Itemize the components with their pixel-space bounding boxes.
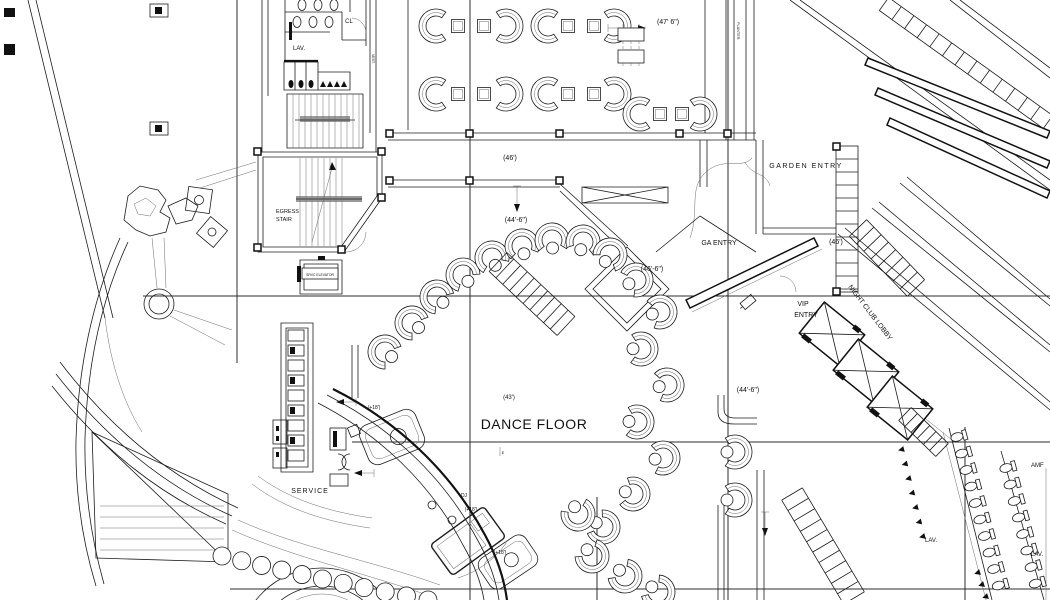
label-srvc-elevator: SRVC ELEVATOR <box>306 273 334 277</box>
landscape-left-path <box>152 238 232 345</box>
stair-edge <box>879 0 1050 128</box>
stall-toilet <box>298 0 306 11</box>
stair-tread <box>917 426 930 439</box>
stair-tread <box>831 571 852 583</box>
stair-tread <box>825 561 846 573</box>
bar-equipment <box>288 330 304 341</box>
scallop-seat <box>419 591 437 600</box>
booth-table <box>645 307 660 322</box>
stanchion-triangle <box>897 446 904 453</box>
planter-strip <box>726 0 754 140</box>
stair-tread <box>893 265 910 282</box>
column-markers <box>4 0 168 432</box>
booth-table <box>579 541 596 558</box>
booth-table <box>721 494 733 506</box>
label-dim-46-6: (46'-6") <box>641 266 664 273</box>
stall-toilet <box>314 0 322 11</box>
column <box>386 130 393 137</box>
urinal <box>309 80 314 88</box>
stair-tread <box>886 257 903 274</box>
booth-table <box>410 319 427 336</box>
restroom-block-path <box>289 22 292 40</box>
stair-edge <box>782 488 865 600</box>
bar-equipment-dark <box>290 347 295 354</box>
egress-stair-path <box>196 162 256 188</box>
column <box>556 130 563 137</box>
label-plus18-left: (+18') <box>368 405 381 411</box>
vip-entry-area-path-path <box>740 294 756 309</box>
stair-tread <box>905 16 914 29</box>
elevated-booths-path-path <box>475 531 542 592</box>
stanchion-triangle <box>981 593 989 600</box>
label-cl: CL <box>345 19 353 25</box>
stanchion-triangle <box>915 519 922 526</box>
stall-toilet <box>309 17 317 28</box>
booth-seat <box>419 77 446 111</box>
stair-tread <box>794 509 815 521</box>
stanchion-triangle <box>908 490 915 497</box>
night-club-lobby-walls <box>808 177 1050 440</box>
dj-booth-path <box>430 506 506 576</box>
urinal <box>299 80 304 88</box>
elevated-booths-path <box>347 403 427 471</box>
stair-tread <box>1018 97 1027 110</box>
booth-table <box>460 273 477 290</box>
urinal <box>289 80 294 88</box>
landscape-left-path <box>124 186 170 236</box>
bar-equipment-dark <box>290 407 295 414</box>
service-elevator-path <box>318 256 325 260</box>
stair-tread <box>892 7 901 20</box>
ramp-fan-top-right-path <box>790 0 1050 190</box>
column <box>386 177 393 184</box>
scallop-seat <box>376 583 394 600</box>
booth-table <box>567 499 583 515</box>
faucet-mark <box>327 81 333 87</box>
column <box>833 143 840 150</box>
stair-tread <box>942 43 951 56</box>
booth-seat <box>496 9 523 43</box>
booth-table <box>627 343 639 355</box>
stair-tread <box>806 529 827 541</box>
stair-tread <box>980 70 989 83</box>
landscape-left-path <box>149 294 169 314</box>
landscape-left-path <box>76 238 128 586</box>
stair-tread <box>1005 88 1014 101</box>
column-markers-path <box>155 7 162 14</box>
landscape-left-path <box>134 198 156 216</box>
stair-tread <box>879 0 888 10</box>
egress-stair <box>196 152 382 252</box>
stair-tread <box>900 272 917 289</box>
stanchion-triangle <box>904 475 911 482</box>
faucet-mark <box>341 81 347 87</box>
label-dim-44-6-mid: (44'-6") <box>737 387 760 394</box>
booth-table <box>623 415 636 428</box>
stair-tread <box>955 52 964 65</box>
rect-table <box>618 50 644 63</box>
label-ga-entry: GA ENTRY <box>701 240 737 247</box>
column <box>378 194 385 201</box>
booth-seat <box>606 557 649 600</box>
stanchion-triangle <box>901 461 908 468</box>
service-elevator-path <box>297 266 301 282</box>
service-bar-path <box>273 448 287 468</box>
stair-tread <box>923 432 936 445</box>
scallop-seat <box>253 556 271 574</box>
label-dj: DJ <box>461 493 468 499</box>
booth-table <box>621 276 637 292</box>
column <box>466 177 473 184</box>
faucet-mark <box>334 81 340 87</box>
landscape-left-path-path <box>206 226 217 237</box>
seating-area-walls-path <box>700 140 707 187</box>
label-dim-46-top: (46') <box>503 155 517 162</box>
service-bar-path <box>330 474 348 486</box>
booth-table <box>618 484 633 499</box>
booth-table <box>643 578 660 595</box>
restroom-block-path <box>284 62 350 90</box>
booth-table <box>721 446 733 458</box>
scallop-seat <box>355 579 373 597</box>
stair-tread <box>857 227 874 244</box>
grid-lines-path <box>354 470 362 476</box>
seating-area-walls-path <box>582 187 668 203</box>
booth-seat <box>531 9 558 43</box>
column <box>378 148 385 155</box>
label-vip-line1: VIP <box>797 301 809 308</box>
column-markers-path <box>28 0 113 318</box>
label-service: SERVICE <box>291 488 329 495</box>
stair-tread <box>930 438 943 451</box>
label-egress-line2: STAIR <box>276 217 292 223</box>
restroom-block-path <box>300 116 350 122</box>
landscape-left-path-path <box>194 195 204 205</box>
stair-tread <box>844 592 865 600</box>
service-bar-path <box>330 428 346 450</box>
scallop-seat <box>213 547 231 565</box>
bar-equipment-dark <box>290 377 295 384</box>
booth-table <box>611 562 628 579</box>
vip-entry-area-path-path <box>740 306 742 308</box>
stair-tread <box>837 581 858 593</box>
balcony-arcs-path <box>92 432 228 562</box>
elevated-booths-path <box>448 516 456 524</box>
label-vip-line2: ENTRY <box>794 312 818 319</box>
stair-tread <box>1043 116 1050 129</box>
stair-tread <box>782 488 803 500</box>
service-bar-path <box>276 436 279 441</box>
elevated-booths-path <box>475 531 542 592</box>
vip-entry-area-path <box>738 294 756 311</box>
stair-tread <box>917 25 926 38</box>
column <box>254 148 261 155</box>
stair-tread <box>930 34 939 47</box>
label-egress-line1: EGRESS <box>276 209 299 215</box>
stair-tread <box>936 444 949 457</box>
label-lav-right: LAV. <box>1031 552 1043 558</box>
faucet-mark <box>320 81 326 87</box>
booth-table <box>573 242 588 257</box>
booth-seat <box>419 9 446 43</box>
column-markers-path <box>4 8 15 17</box>
floor-plan-drawing: CL LAV. VEST. PLANTER (47' 6") GARDEN EN… <box>0 0 1050 600</box>
dance-floor-walls-path <box>352 345 358 398</box>
column <box>724 130 731 137</box>
booth-table <box>597 253 614 270</box>
bar-equipment <box>288 420 304 431</box>
elevated-booths-path <box>428 501 436 509</box>
stair-tread <box>1031 106 1040 119</box>
stair-tread <box>819 550 840 562</box>
service-bar-path <box>276 452 279 457</box>
column-markers-path <box>4 44 15 55</box>
booth-seat <box>531 77 558 111</box>
service-bar-path <box>252 476 372 528</box>
column <box>466 130 473 137</box>
scallop-seat <box>233 552 251 570</box>
label-dim-47-6: (47' 6") <box>657 19 679 26</box>
landscape-left-path <box>144 289 174 319</box>
service-bar-path <box>276 426 279 431</box>
stair-tread <box>993 79 1002 92</box>
garden-entry-room-path <box>756 140 836 234</box>
scallop-seat <box>314 570 332 588</box>
stair-tread <box>788 498 809 510</box>
scallop-seat <box>273 561 291 579</box>
landscape-left-path <box>197 217 228 248</box>
service-bar-path <box>338 454 350 470</box>
column <box>833 288 840 295</box>
label-dance-floor: DANCE FLOOR <box>481 416 588 432</box>
bar-equipment-dark <box>290 437 295 444</box>
label-dim-44-6-top: (44'-6") <box>505 217 528 224</box>
label-e-mark: E <box>502 450 505 455</box>
label-dim-46-right: (46') <box>829 239 843 246</box>
restroom-block-path <box>352 18 366 33</box>
column <box>676 130 683 137</box>
booth-table <box>383 348 400 365</box>
stall-toilet <box>293 17 301 28</box>
column <box>254 244 261 251</box>
label-plus18-dj: (+18') <box>465 507 478 513</box>
booth-table <box>517 246 532 261</box>
bar-equipment <box>288 390 304 401</box>
label-lav-top: LAV. <box>293 46 305 52</box>
dj-booth <box>430 506 512 584</box>
landscape-left-path-path <box>197 217 228 248</box>
booth-table <box>546 242 559 255</box>
label-dim-43: (43') <box>503 395 515 401</box>
label-plus18-bottom: (+18') <box>494 550 507 556</box>
booth-seat <box>573 538 616 580</box>
bar-equipment <box>288 450 304 461</box>
grid-lines-path <box>514 204 520 212</box>
column <box>338 246 345 253</box>
landscape-left <box>76 186 232 586</box>
stair-tread <box>800 519 821 531</box>
booth-seat <box>496 77 523 111</box>
label-amf: AMF <box>1031 463 1044 469</box>
column-markers-path <box>155 125 162 132</box>
booth-table <box>652 380 666 394</box>
vip-entry-area-path <box>686 238 818 308</box>
booth-table <box>648 452 662 466</box>
stair-tread <box>813 540 834 552</box>
column-markers-path <box>105 318 142 432</box>
booth-seat <box>690 97 717 131</box>
rect-table <box>618 28 644 41</box>
column <box>556 177 563 184</box>
balcony-arcs-path <box>100 506 224 550</box>
scallop-seat <box>293 566 311 584</box>
service-bar-path <box>273 420 287 444</box>
grid-lines-path <box>762 528 768 536</box>
stall-toilet <box>330 0 338 11</box>
southeast-corridors-path <box>718 395 757 424</box>
label-planter: PLANTER <box>736 22 740 40</box>
stair-tread <box>968 61 977 74</box>
label-garden-entry: GARDEN ENTRY <box>769 163 843 170</box>
garden-entry-room-path <box>690 158 770 238</box>
stanchion-triangle <box>977 581 985 589</box>
stall-toilet <box>325 17 333 28</box>
service-bar-path <box>333 431 337 447</box>
elevated-booths-path-path <box>347 424 360 437</box>
scallop-seat <box>334 574 352 592</box>
stair-tread <box>864 235 881 252</box>
planter-strip-path <box>726 0 754 140</box>
stanchion-triangle <box>911 504 918 511</box>
label-vest: VEST. <box>371 54 375 64</box>
egress-stair-path <box>312 168 332 242</box>
bar-equipment <box>288 360 304 371</box>
label-lav-left: LAV. <box>925 538 937 544</box>
stair-tread <box>871 242 888 259</box>
